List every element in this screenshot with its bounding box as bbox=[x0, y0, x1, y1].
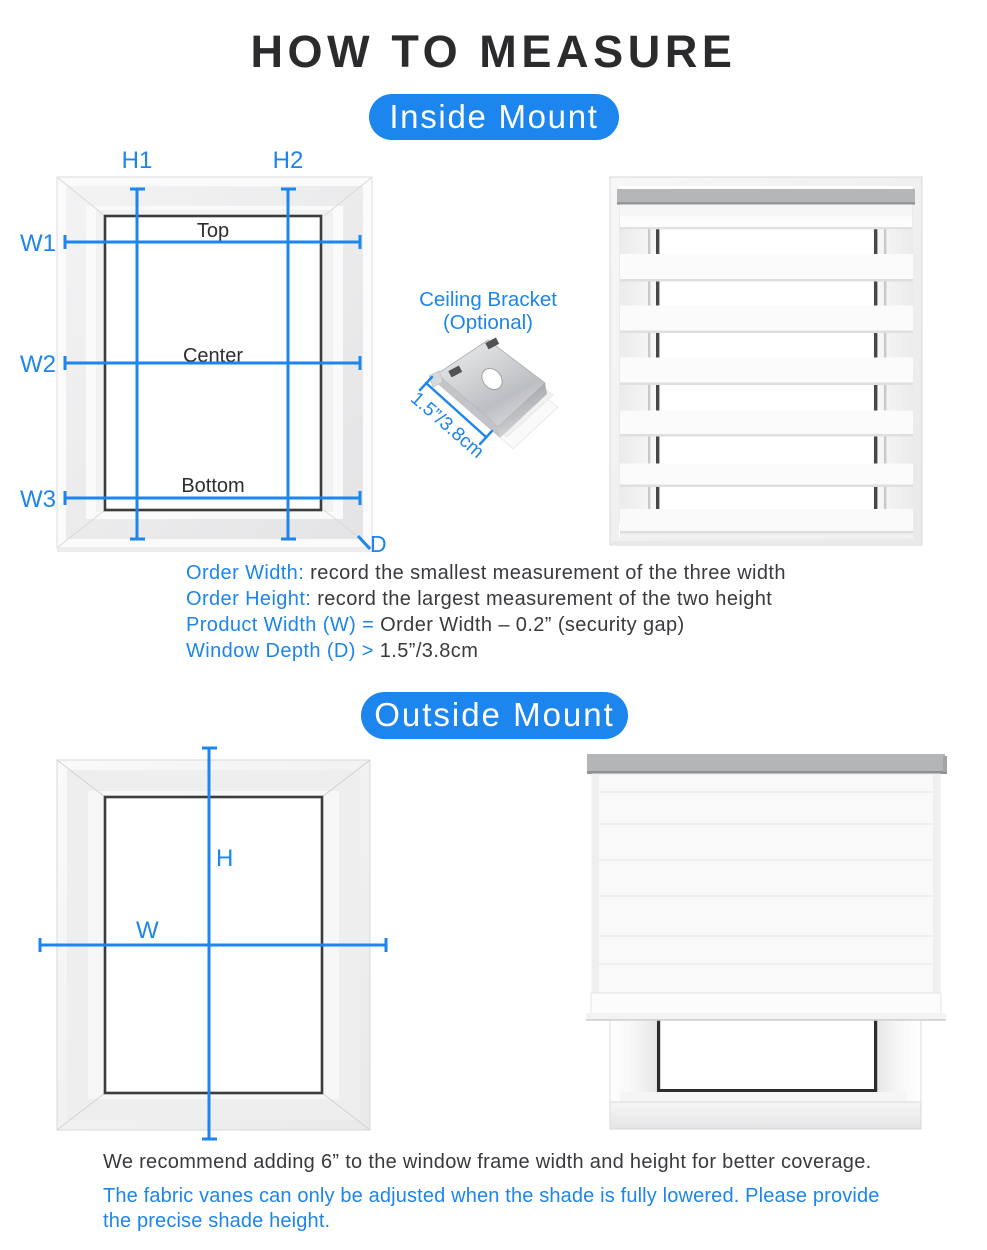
svg-text:W1: W1 bbox=[20, 230, 56, 257]
svg-text:W: W bbox=[136, 917, 159, 944]
svg-text:W3: W3 bbox=[20, 486, 56, 513]
svg-text:W2: W2 bbox=[20, 351, 56, 378]
svg-text:H2: H2 bbox=[273, 147, 304, 174]
svg-text:Top: Top bbox=[197, 220, 229, 242]
svg-text:D: D bbox=[370, 531, 387, 557]
svg-text:H: H bbox=[216, 845, 233, 872]
svg-text:Bottom: Bottom bbox=[181, 475, 244, 497]
svg-text:H1: H1 bbox=[122, 147, 153, 174]
